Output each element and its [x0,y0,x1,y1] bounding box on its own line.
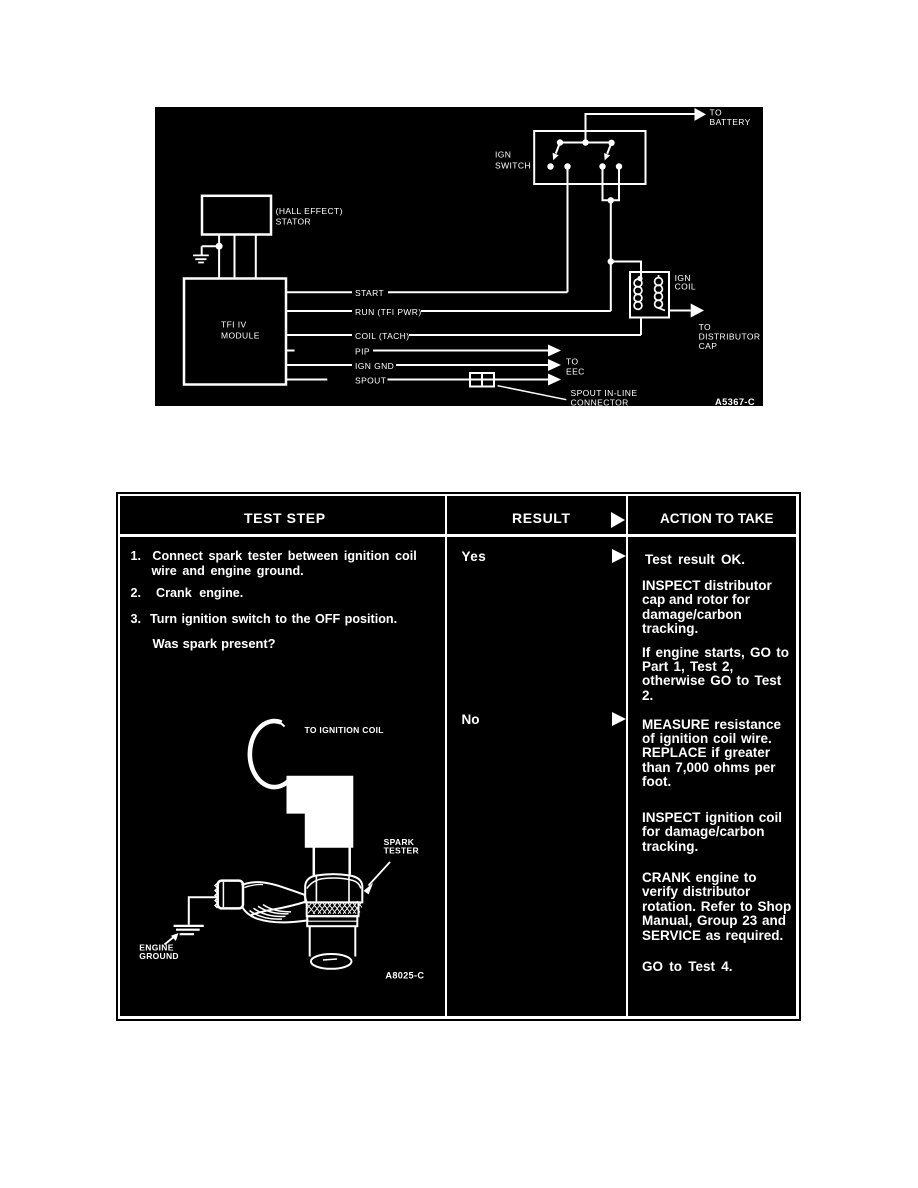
svg-text:GROUND: GROUND [139,951,179,961]
svg-text:SPOUT: SPOUT [355,375,386,385]
svg-text:STATOR: STATOR [276,217,311,227]
svg-text:TO IGNITION COIL: TO IGNITION COIL [305,725,384,735]
svg-text:TO: TO [699,322,711,332]
svg-text:PIP: PIP [355,346,370,356]
svg-text:TFI IV: TFI IV [221,320,247,330]
svg-text:SWITCH: SWITCH [495,161,531,171]
svg-text:(HALL EFFECT): (HALL EFFECT) [276,206,343,216]
svg-text:TO: TO [710,108,722,118]
svg-text:TO: TO [566,357,578,367]
svg-text:SPOUT IN-LINE: SPOUT IN-LINE [571,388,638,398]
svg-text:MODULE: MODULE [221,331,260,341]
svg-text:IGN GND: IGN GND [355,361,394,371]
svg-text:RUN (TFI PWR): RUN (TFI PWR) [355,307,422,317]
svg-text:DISTRIBUTOR: DISTRIBUTOR [699,332,761,342]
svg-text:IGN: IGN [495,150,511,160]
svg-text:BATTERY: BATTERY [710,117,751,127]
svg-text:COIL (TACH): COIL (TACH) [355,331,409,341]
svg-text:START: START [355,288,384,298]
svg-text:CONNECTOR: CONNECTOR [571,398,629,407]
svg-text:COIL: COIL [675,282,696,292]
svg-text:A5367-C: A5367-C [715,397,755,406]
svg-text:A8025-C: A8025-C [385,971,424,981]
svg-text:EEC: EEC [566,367,585,377]
svg-text:TESTER: TESTER [384,846,419,856]
svg-text:CAP: CAP [699,341,718,351]
